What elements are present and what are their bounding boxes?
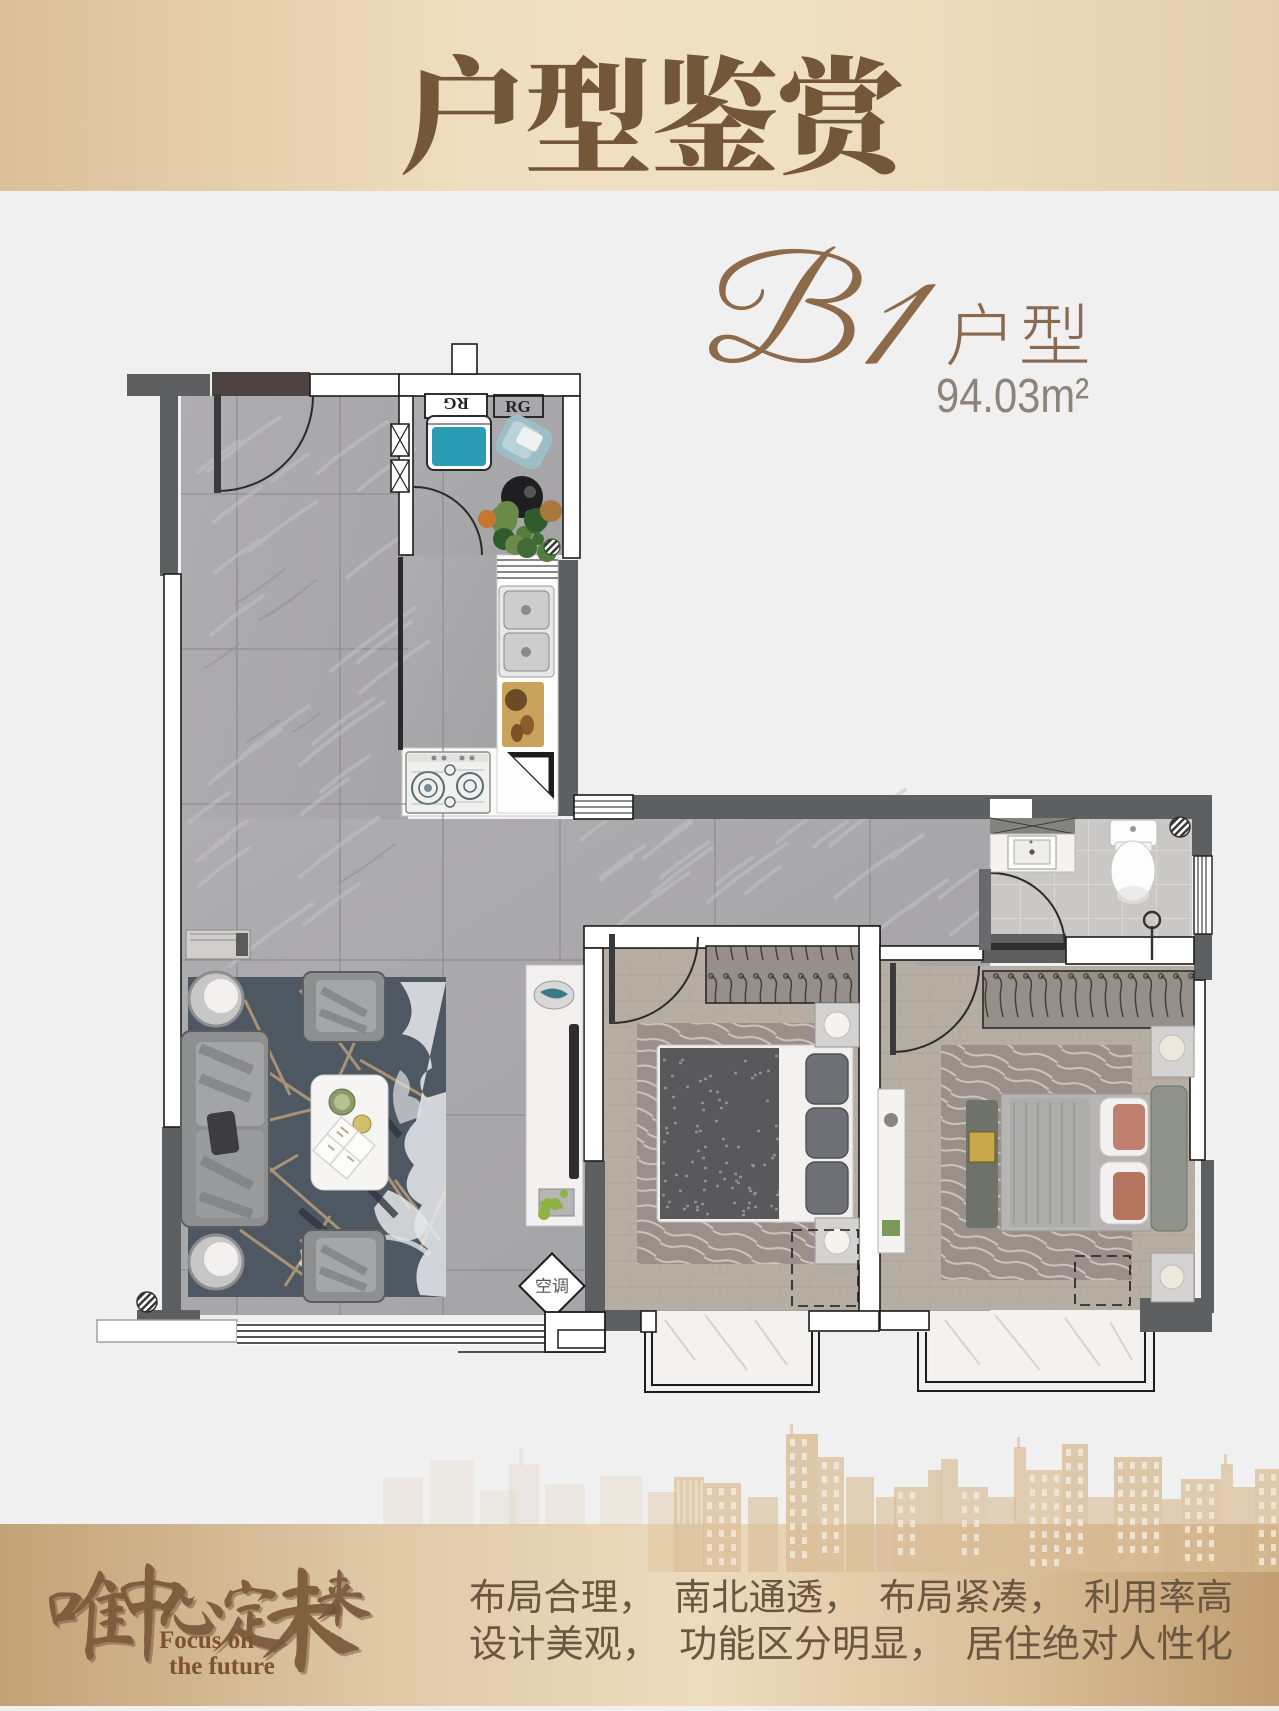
svg-text:94.03m²: 94.03m² [936, 370, 1089, 423]
svg-text:RG: RG [443, 394, 469, 413]
svg-text:the future: the future [169, 1653, 275, 1680]
svg-text:RG: RG [505, 397, 531, 416]
svg-text:Focus on: Focus on [159, 1627, 254, 1654]
